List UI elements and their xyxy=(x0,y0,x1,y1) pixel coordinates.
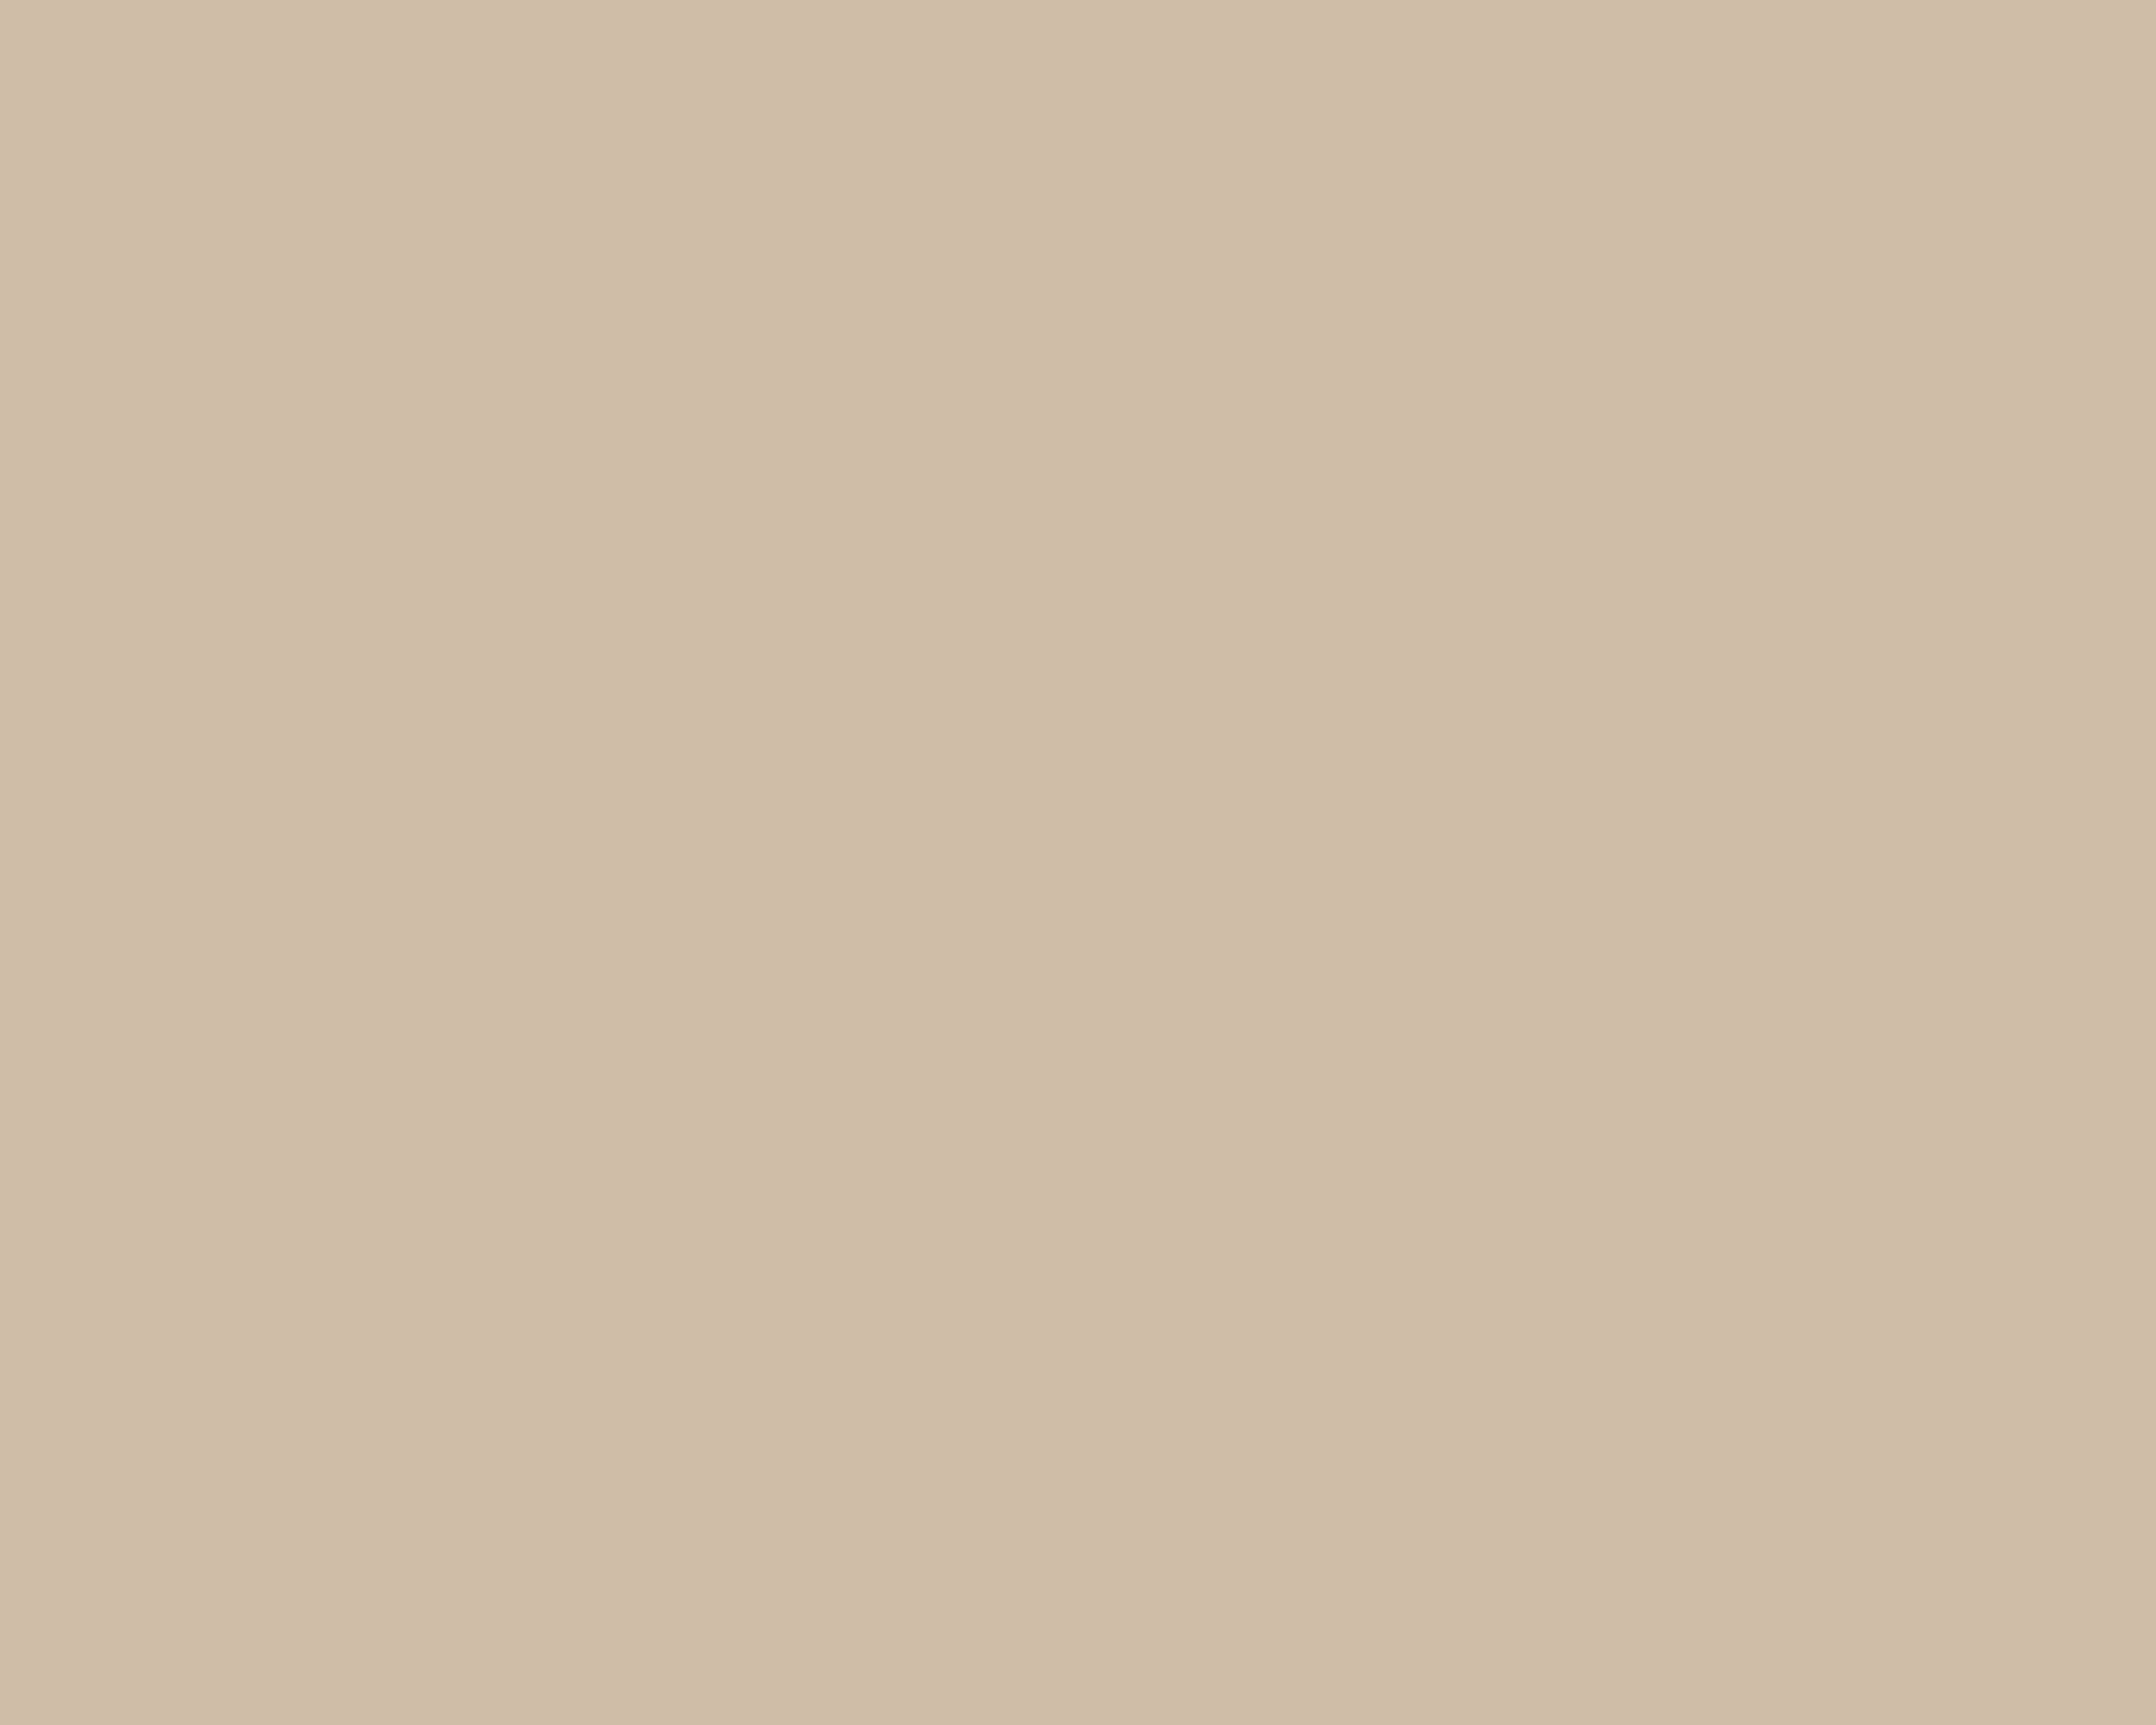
site-plan-rendering xyxy=(0,0,2156,1725)
aerial-rendering xyxy=(0,0,2156,1725)
